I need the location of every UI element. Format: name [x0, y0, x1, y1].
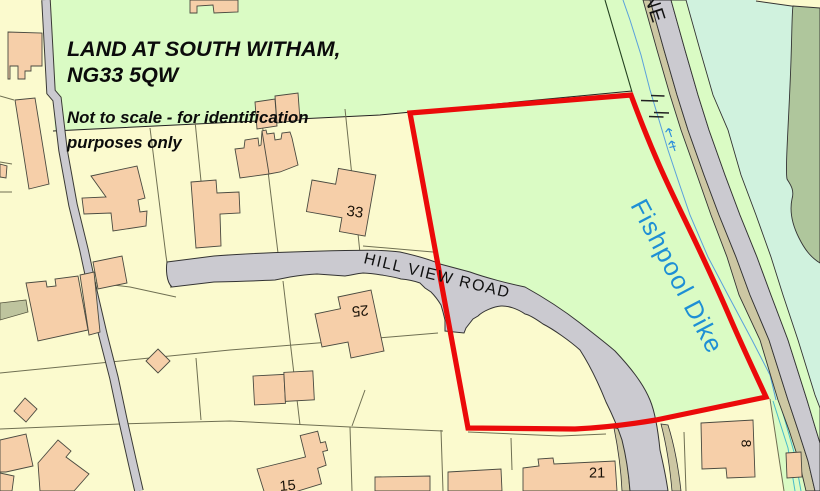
svg-text:33: 33 [345, 203, 364, 222]
svg-text:21: 21 [589, 466, 605, 482]
svg-text:8: 8 [739, 440, 755, 448]
svg-text:15: 15 [279, 478, 296, 491]
svg-text:purposes only: purposes only [66, 133, 183, 152]
svg-text:Not to scale - for identificat: Not to scale - for identification [67, 108, 308, 127]
svg-text:NG33 5QW: NG33 5QW [67, 63, 180, 87]
svg-text:LAND AT SOUTH WITHAM,: LAND AT SOUTH WITHAM, [67, 37, 341, 61]
svg-text:25: 25 [351, 301, 369, 320]
